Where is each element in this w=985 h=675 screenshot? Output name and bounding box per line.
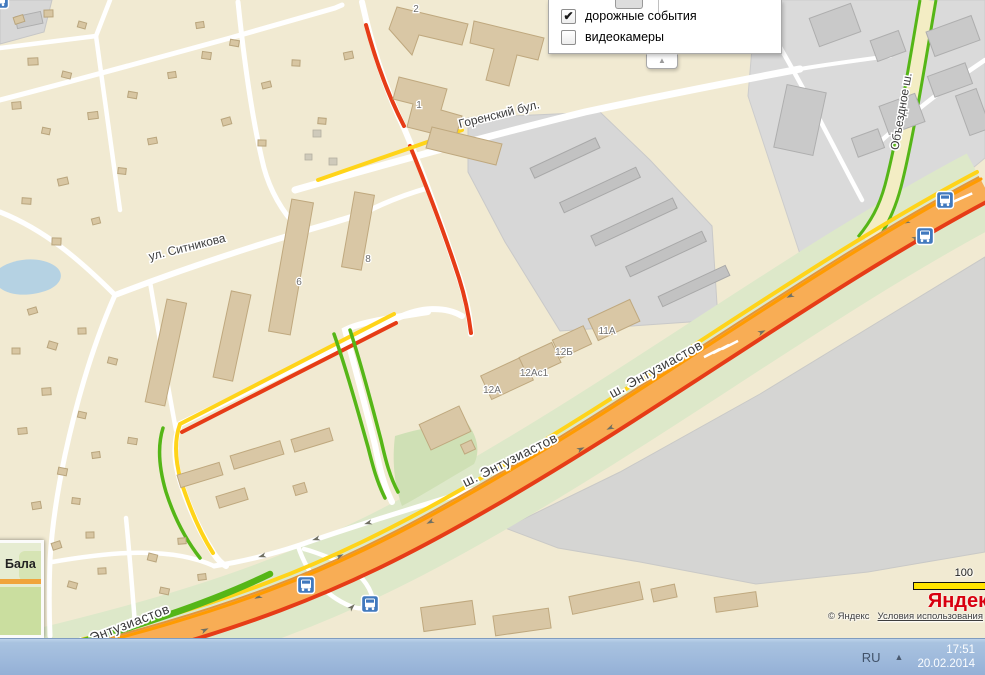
garden-house [28, 58, 38, 66]
building-number-2: 2 [413, 4, 419, 15]
building-number-6: 6 [296, 277, 302, 288]
system-tray: RU ▲ 17:51 20.02.2014 [862, 643, 985, 672]
map-canvas[interactable]: Горенский бул. ул. Ситникова Объездное ш… [0, 0, 985, 638]
garden-house [78, 328, 86, 334]
terms-of-use-link[interactable]: Условия использования [878, 611, 983, 622]
garden-house [86, 532, 94, 538]
minimap-city-label: Бала [5, 557, 36, 571]
garden-house [41, 127, 50, 135]
taskbar[interactable]: RU ▲ 17:51 20.02.2014 [0, 638, 985, 675]
bus-stop-icon [937, 192, 954, 209]
popup-divider [658, 0, 659, 13]
minimap-forest [0, 587, 41, 635]
bus-stop-icon [298, 577, 315, 594]
garden-house [42, 388, 51, 396]
road-events-checkbox[interactable]: ✔ [561, 9, 576, 24]
garden-house [98, 568, 106, 574]
clock-time: 17:51 [917, 643, 975, 657]
layer-option-cameras[interactable]: видеокамеры [561, 29, 664, 45]
garden-house [22, 198, 31, 205]
traffic-toggle-stub[interactable] [615, 0, 643, 9]
garden-house [88, 111, 99, 119]
checkmark-icon: ✔ [563, 11, 573, 22]
bus-stop-icon [362, 596, 379, 613]
garden-house [198, 574, 207, 581]
garden-house [318, 118, 326, 125]
clock[interactable]: 17:51 20.02.2014 [917, 643, 975, 672]
layer-option-road-events[interactable]: ✔ дорожные события [561, 8, 697, 24]
cameras-label: видеокамеры [585, 30, 664, 44]
garden-house [258, 140, 266, 146]
popup-collapse-button[interactable]: ▲ [646, 54, 678, 69]
garden-house [159, 587, 169, 595]
overview-minimap[interactable]: Бала [0, 540, 44, 638]
garden-house [91, 217, 100, 225]
garden-house [128, 91, 138, 98]
building-number-1: 1 [416, 100, 422, 111]
garden-house [57, 467, 67, 476]
building-number-12b: 12Б [555, 347, 573, 358]
garden-house [343, 51, 353, 60]
garden-house [12, 348, 20, 354]
road-events-label: дорожные события [585, 9, 697, 23]
garden-house [57, 177, 68, 186]
garden-house [202, 51, 212, 59]
garden-house [92, 451, 101, 458]
building-number-12a: 12А [483, 385, 501, 396]
screen: Горенский бул. ул. Ситникова Объездное ш… [0, 0, 985, 675]
bus-stop-icon [917, 228, 934, 245]
garden-house [178, 538, 186, 545]
garden-house [118, 168, 127, 175]
garden-house [44, 10, 53, 17]
cameras-checkbox[interactable] [561, 30, 576, 45]
minimap-road [0, 579, 41, 584]
tray-expand-icon[interactable]: ▲ [895, 652, 904, 662]
language-indicator[interactable]: RU [862, 650, 881, 665]
garden-house [12, 102, 22, 110]
yandex-logo[interactable]: Яндекс [928, 590, 985, 613]
garden-house [31, 501, 41, 509]
garden-house [230, 39, 240, 46]
garden-house [72, 498, 81, 505]
garden-house [52, 238, 61, 245]
building-number-12as1: 12Ас1 [520, 368, 549, 379]
building-number-11a: 11А [598, 326, 615, 337]
garden-house [147, 553, 157, 562]
building-number-8: 8 [365, 254, 371, 265]
garden-house [148, 137, 158, 145]
map-layers-popup: ✔ дорожные события видеокамеры [548, 0, 782, 54]
garden-house [196, 21, 205, 28]
garden-house [128, 437, 138, 444]
garden-house [18, 428, 28, 435]
garden-house [292, 60, 300, 66]
garden-house [168, 71, 177, 78]
garden-house [77, 411, 86, 419]
clock-date: 20.02.2014 [917, 657, 975, 671]
